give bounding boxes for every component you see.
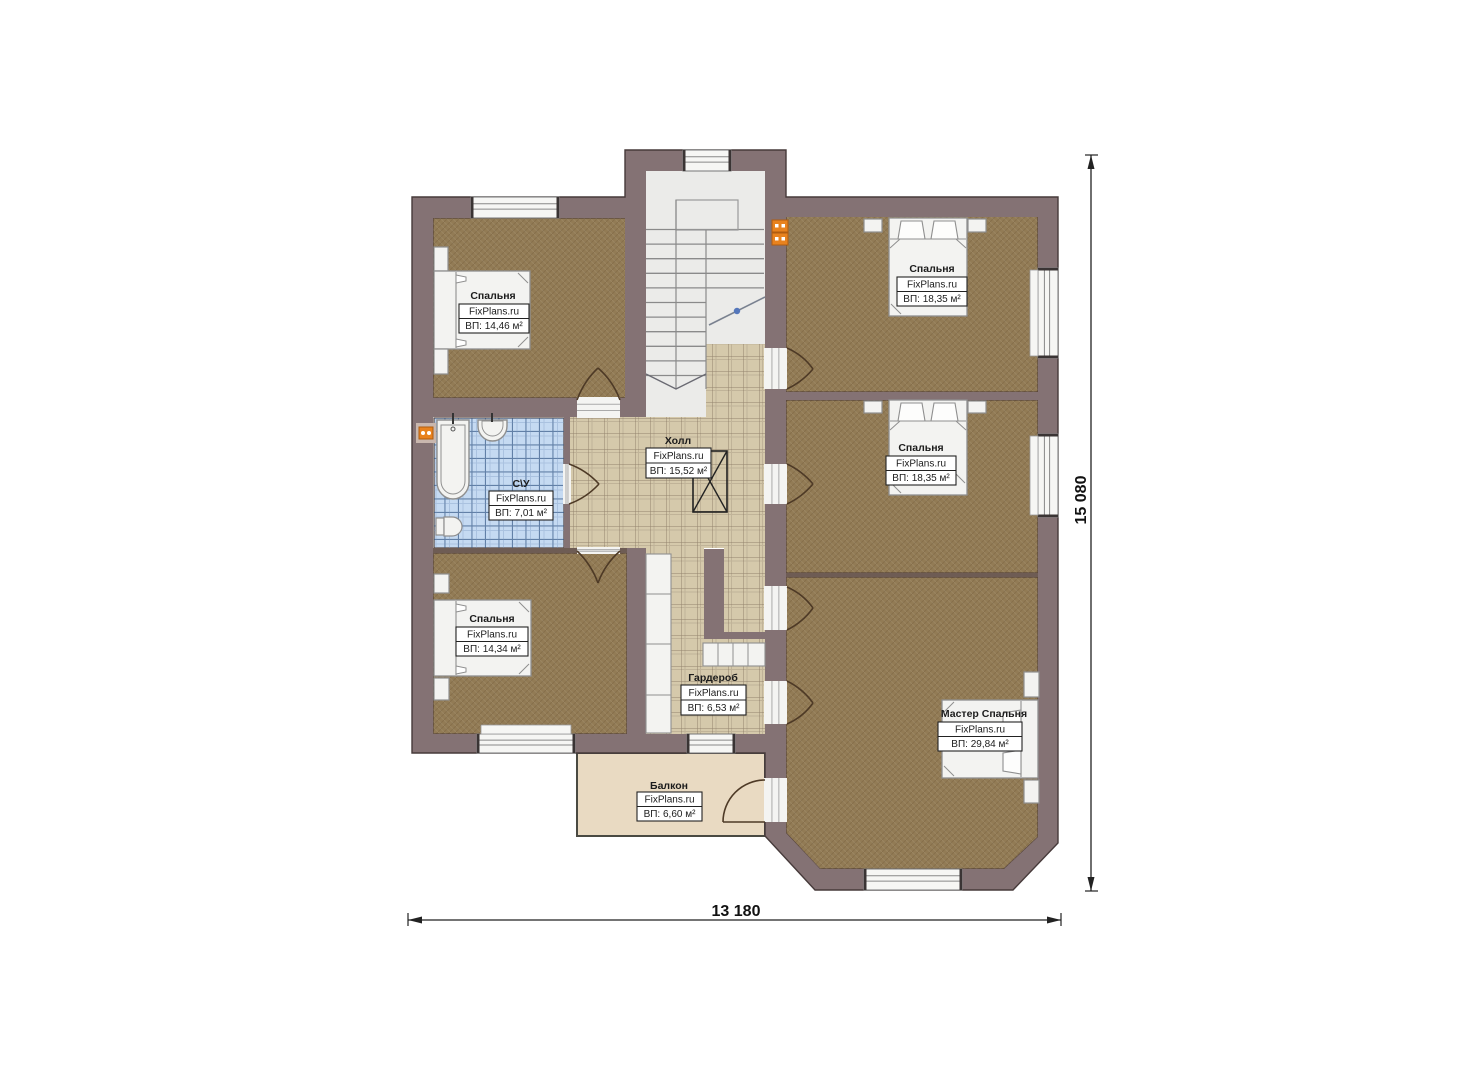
svg-text:FixPlans.ru: FixPlans.ru: [896, 459, 946, 470]
svg-text:ВП: 6,60 м²: ВП: 6,60 м²: [644, 809, 697, 820]
svg-text:ВП: 18,35 м²: ВП: 18,35 м²: [903, 294, 961, 305]
svg-text:FixPlans.ru: FixPlans.ru: [644, 795, 694, 806]
svg-text:ВП: 18,35 м²: ВП: 18,35 м²: [892, 473, 950, 484]
svg-text:Гардероб: Гардероб: [688, 672, 738, 684]
svg-text:FixPlans.ru: FixPlans.ru: [688, 688, 738, 699]
svg-text:Спальня: Спальня: [469, 613, 514, 625]
svg-text:FixPlans.ru: FixPlans.ru: [653, 451, 703, 462]
svg-text:Мастер Спальня: Мастер Спальня: [941, 708, 1027, 720]
svg-text:Балкон: Балкон: [650, 780, 688, 792]
svg-text:ВП: 14,34 м²: ВП: 14,34 м²: [463, 644, 521, 655]
svg-text:Спальня: Спальня: [909, 263, 954, 275]
svg-text:13 180: 13 180: [712, 903, 761, 920]
svg-text:ВП: 29,84 м²: ВП: 29,84 м²: [951, 739, 1009, 750]
svg-text:ВП: 15,52 м²: ВП: 15,52 м²: [650, 466, 708, 477]
svg-text:FixPlans.ru: FixPlans.ru: [955, 725, 1005, 736]
svg-text:FixPlans.ru: FixPlans.ru: [496, 494, 546, 505]
svg-text:ВП: 7,01 м²: ВП: 7,01 м²: [495, 508, 548, 519]
svg-text:15 080: 15 080: [1073, 475, 1090, 524]
svg-text:Спальня: Спальня: [470, 290, 515, 302]
svg-text:FixPlans.ru: FixPlans.ru: [469, 307, 519, 318]
svg-text:ВП: 6,53 м²: ВП: 6,53 м²: [688, 703, 741, 714]
svg-text:FixPlans.ru: FixPlans.ru: [907, 280, 957, 291]
svg-text:С\У: С\У: [512, 478, 530, 490]
svg-text:Спальня: Спальня: [898, 442, 943, 454]
svg-text:ВП: 14,46 м²: ВП: 14,46 м²: [465, 321, 523, 332]
svg-text:FixPlans.ru: FixPlans.ru: [467, 630, 517, 641]
svg-text:Холл: Холл: [665, 435, 691, 447]
